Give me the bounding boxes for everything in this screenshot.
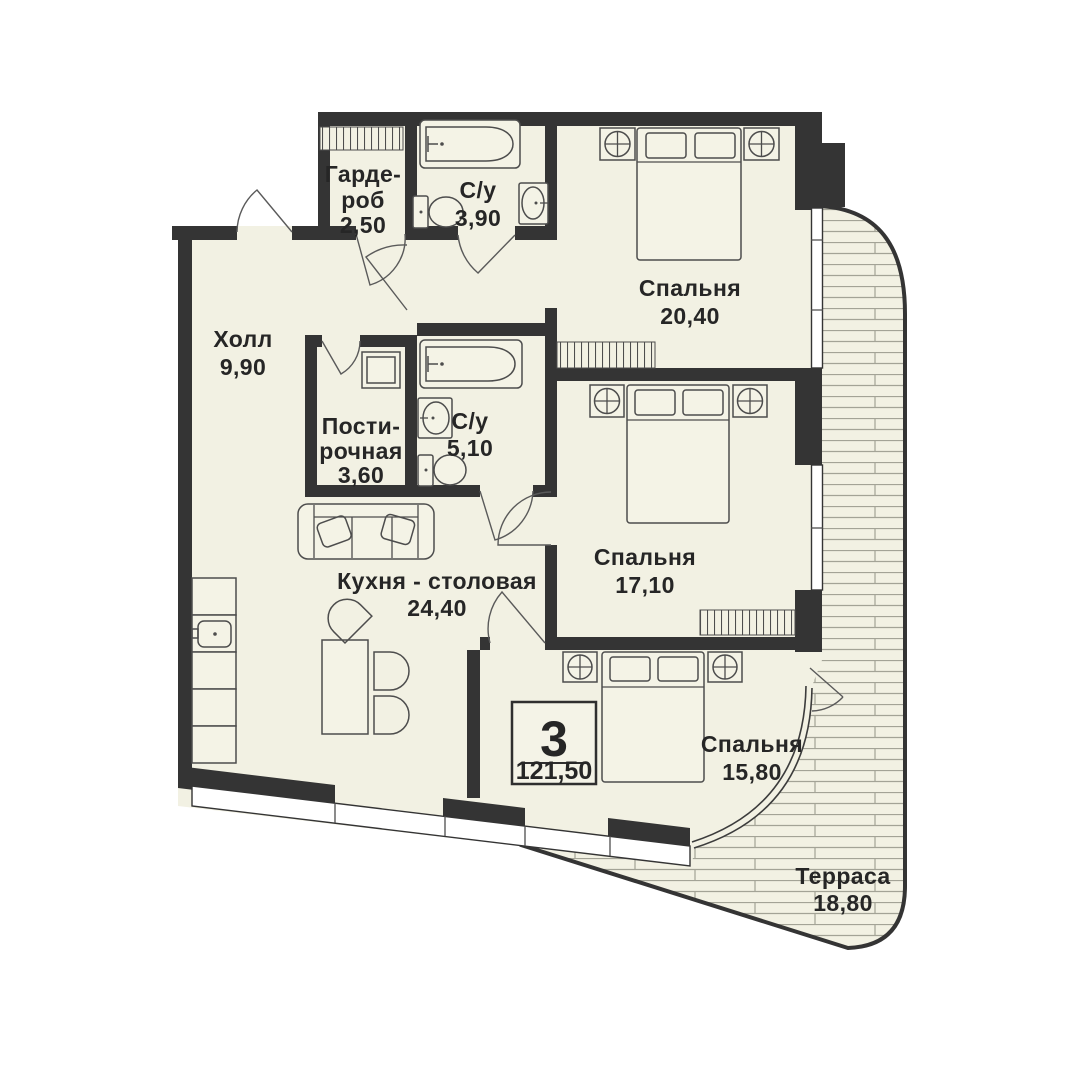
wall-segment	[515, 226, 557, 240]
wall-segment	[545, 368, 822, 381]
bathtub-1	[420, 120, 520, 168]
room-area: 3,90	[455, 205, 501, 231]
room-area: 18,80	[813, 890, 873, 916]
radiator-bedroom1	[557, 342, 655, 368]
room-area: 2,50	[340, 212, 386, 238]
room-area: 3,60	[338, 462, 384, 488]
wall-segment	[545, 545, 557, 650]
wall-segment	[818, 143, 845, 207]
wall-segment	[795, 112, 822, 210]
room-label-bathroom2: С/у 5,10	[447, 408, 493, 461]
room-name: Спальня	[701, 731, 803, 757]
room-name: Кухня - столовая	[337, 568, 537, 594]
wardrobe-shelving	[320, 127, 403, 150]
floor-plan-page: Гарде- роб 2,50 С/у 3,90 Спальня 20,40 Х…	[0, 0, 1080, 1080]
wall-segment	[318, 112, 822, 126]
room-name: С/у	[460, 177, 497, 203]
wall-segment	[417, 485, 480, 497]
room-name: роб	[341, 187, 385, 213]
area-badge: 3 121,50	[512, 702, 596, 785]
wall-segment	[545, 368, 557, 492]
wall-segment	[305, 335, 317, 497]
room-name: Гарде-	[325, 161, 401, 187]
sink-2	[418, 398, 452, 438]
washing-machine	[362, 352, 400, 388]
window-bedroom1	[811, 208, 823, 368]
room-name: рочная	[319, 438, 402, 464]
wall-segment	[178, 226, 192, 776]
room-area: 9,90	[220, 354, 266, 380]
kitchen-counter	[192, 578, 236, 763]
room-name: Пости-	[322, 413, 401, 439]
room-name: С/у	[452, 408, 489, 434]
room-name: Холл	[213, 326, 272, 352]
room-area: 15,80	[722, 759, 782, 785]
entry-door	[237, 190, 292, 232]
floor-plan: Гарде- роб 2,50 С/у 3,90 Спальня 20,40 Х…	[0, 0, 1080, 1080]
wall-segment	[417, 323, 557, 336]
wall-segment	[405, 335, 417, 497]
sofa	[298, 504, 434, 559]
bathtub-2	[420, 340, 522, 388]
room-name: Спальня	[639, 275, 741, 301]
room-area: 20,40	[660, 303, 720, 329]
room-area: 17,10	[615, 572, 675, 598]
sink-1	[519, 183, 548, 224]
window-bedroom2	[811, 465, 823, 590]
badge-total-area: 121,50	[516, 757, 592, 785]
room-name: Спальня	[594, 544, 696, 570]
room-name: Терраса	[795, 863, 890, 889]
radiator-bedroom2	[700, 610, 795, 635]
wall-segment	[533, 485, 557, 497]
wall-segment	[467, 650, 480, 798]
wall-segment	[795, 368, 822, 465]
room-area: 5,10	[447, 435, 493, 461]
room-area: 24,40	[407, 595, 467, 621]
wall-segment	[405, 226, 458, 240]
wall-segment	[545, 637, 810, 650]
